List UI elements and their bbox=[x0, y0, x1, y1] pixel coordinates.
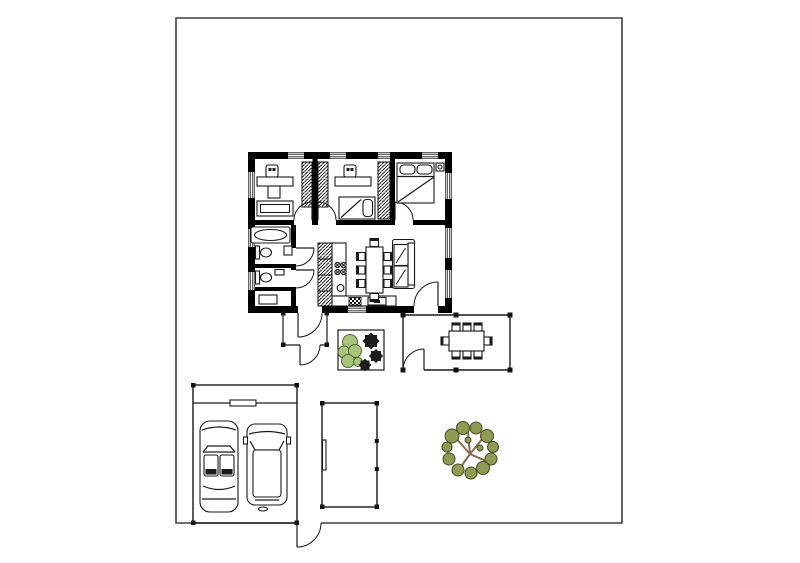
car2-mirror-left bbox=[244, 437, 248, 444]
carport-side-panel bbox=[323, 440, 327, 470]
pillow-right bbox=[417, 165, 432, 174]
entrance-door-gap bbox=[414, 306, 438, 315]
small-bedroom-desk-chair bbox=[344, 165, 356, 177]
small-bedroom-wardrobe-left bbox=[318, 162, 328, 207]
small-bedroom-desk bbox=[335, 177, 371, 186]
bathroom-washbasin bbox=[284, 246, 292, 255]
office-wardrobe bbox=[302, 162, 312, 207]
kitchen-round-sink bbox=[337, 285, 344, 292]
bathroom bbox=[251, 227, 292, 259]
single-bed-pillow bbox=[363, 200, 373, 217]
floor-plan-drawing bbox=[0, 0, 800, 563]
garage-door-panel bbox=[230, 400, 256, 406]
office-desk-return bbox=[268, 186, 280, 198]
car-convertible bbox=[200, 421, 238, 512]
car2-towbar bbox=[259, 507, 268, 511]
kitchen-tall-cabinet bbox=[318, 243, 332, 306]
wc-washbasin bbox=[275, 270, 284, 276]
sofa-back bbox=[408, 243, 415, 285]
floor-plan-canvas bbox=[0, 0, 800, 563]
pillow-left bbox=[400, 165, 415, 174]
nightstand-lamp bbox=[438, 165, 442, 169]
single-bed bbox=[339, 197, 375, 219]
car-suv bbox=[244, 424, 291, 511]
car2-mirror-right bbox=[287, 437, 291, 444]
office-desk bbox=[257, 177, 293, 186]
office-desk-chair bbox=[266, 165, 278, 177]
car2-roof bbox=[253, 450, 281, 497]
kitchen-sink bbox=[349, 298, 361, 306]
small-bedroom-wardrobe-right bbox=[378, 162, 390, 219]
hall-cabinet bbox=[259, 295, 277, 304]
double-bed bbox=[397, 163, 434, 203]
dining-table bbox=[366, 247, 383, 293]
back-door-gap bbox=[298, 306, 322, 315]
sofa bbox=[393, 240, 415, 289]
terrace-table bbox=[449, 331, 484, 351]
